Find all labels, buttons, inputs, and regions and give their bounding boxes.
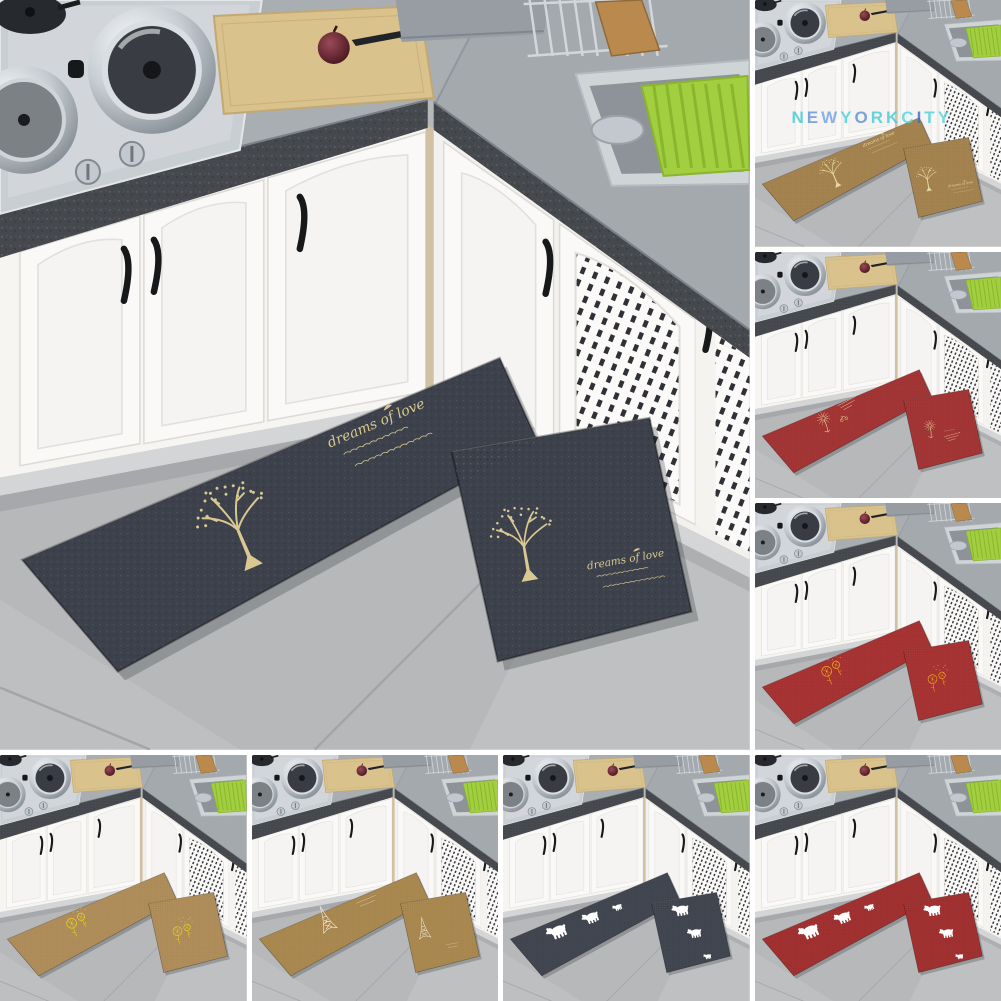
kitchen-scene-svg (755, 252, 1001, 499)
kitchen-scene-svg (252, 755, 499, 1001)
product-photo-brown-tree-mats: dreams of love dreams of love NEWYORKCIT… (755, 0, 1001, 247)
product-photo-red-polar-bear-mats (755, 755, 1001, 1001)
kitchen-scene-svg (755, 503, 1001, 750)
kitchen-scene-svg (755, 755, 1001, 1001)
product-photo-tan-eiffel-mats (252, 755, 499, 1001)
kitchen-scene-svg (0, 755, 247, 1001)
product-photo-tan-dandelion-circle-mats (0, 755, 247, 1001)
product-image-collage[interactable]: dreams of love dreams of love dreams of … (0, 0, 1001, 1001)
kitchen-scene-svg: dreams of love dreams of love (755, 0, 1001, 247)
kitchen-scene-svg: dreams of love dreams of love (0, 0, 750, 750)
product-photo-dark-polar-bear-mats (503, 755, 750, 1001)
product-photo-red-dandelion-mats (755, 252, 1001, 499)
product-photo-main-dark-tree-mats: dreams of love dreams of love (0, 0, 750, 750)
product-photo-red-dandelion-circle-mats (755, 503, 1001, 750)
kitchen-scene-svg (503, 755, 750, 1001)
